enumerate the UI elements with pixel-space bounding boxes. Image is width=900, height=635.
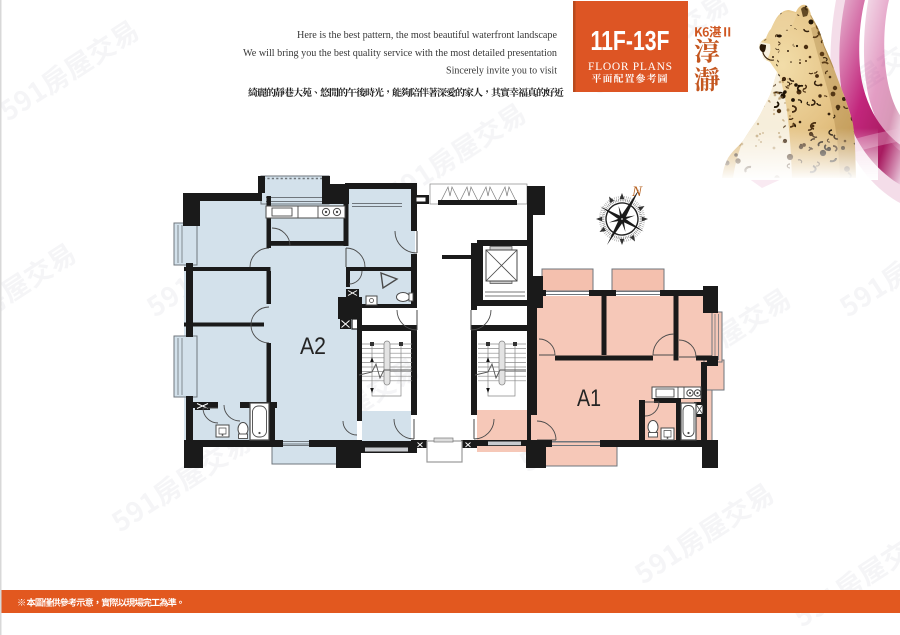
svg-text:A1: A1 bbox=[577, 385, 601, 412]
svg-text:11F-13F: 11F-13F bbox=[591, 25, 670, 56]
svg-text:Here is the best pattern, the: Here is the best pattern, the most beaut… bbox=[297, 29, 557, 41]
svg-text:We will bring you the best qua: We will bring you the best quality servi… bbox=[243, 47, 557, 59]
svg-text:Sincerely invite you to visit: Sincerely invite you to visit bbox=[446, 65, 557, 77]
svg-text:N: N bbox=[631, 184, 643, 200]
svg-text:FLOOR PLANS: FLOOR PLANS bbox=[588, 61, 672, 73]
svg-text:A2: A2 bbox=[300, 333, 326, 360]
